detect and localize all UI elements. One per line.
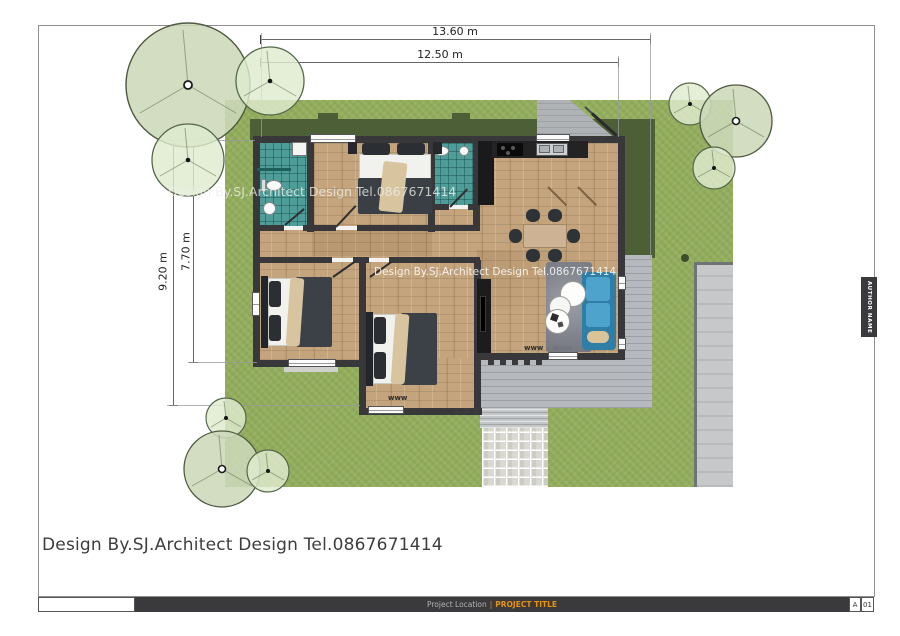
- title-bar-main: Project Location | PROJECT TITLE: [135, 597, 849, 612]
- author-name-tab: AUTHOR NAME: [861, 277, 877, 337]
- title-bar: Project Location | PROJECT TITLE A 01: [38, 597, 874, 612]
- corridor-shading: [312, 230, 432, 256]
- extension-line: [261, 33, 262, 137]
- shower-partition: [257, 168, 291, 171]
- deck-joist: [536, 359, 542, 365]
- door-threshold: [336, 226, 357, 230]
- extension-line: [167, 405, 360, 406]
- shrub: [681, 254, 689, 262]
- project-location-label: Project Location: [427, 600, 487, 609]
- wall-corridor-top: [357, 225, 480, 231]
- dining-chair: [526, 209, 540, 222]
- wall-corridor-bottom: [353, 257, 369, 263]
- stove-burner: [501, 146, 505, 150]
- pillow: [374, 317, 386, 344]
- stove-burner: [511, 146, 515, 150]
- watermark-lower: Design By.SJ.Architect Design Tel.086767…: [374, 266, 616, 278]
- dining-chair: [526, 249, 540, 262]
- wall-corridor-top: [253, 225, 284, 231]
- revision-letter-cell: A: [849, 597, 861, 612]
- bed-headboard: [366, 312, 373, 386]
- wall-bed2-bed3: [359, 257, 366, 415]
- dimension-top-inner: 12.50 m: [365, 48, 515, 61]
- deck-joist: [488, 359, 494, 365]
- folding-door-mark: www: [524, 345, 543, 351]
- terrace-steps: [480, 408, 548, 428]
- pillow: [269, 281, 281, 307]
- dimension-left-inner: 7.70 m: [180, 222, 193, 282]
- extension-line: [650, 33, 651, 258]
- dining-chair: [548, 209, 562, 222]
- pillow: [269, 315, 281, 341]
- extension-line: [618, 56, 619, 137]
- deck-joist: [473, 408, 479, 414]
- stove-burner: [506, 151, 510, 155]
- wall-corridor-top: [303, 225, 336, 231]
- dining-chair: [509, 229, 522, 243]
- dimension-left-inner-line: [193, 140, 194, 362]
- paver-walkway: [482, 428, 548, 487]
- kitchen-sink-basin: [553, 145, 564, 153]
- window-bedroom2-left: [252, 292, 260, 316]
- sheet-number-cell: 01: [861, 597, 874, 612]
- deck-joist: [455, 408, 461, 414]
- wall-corridor-bottom: [389, 257, 480, 263]
- window-bedroom3-bottom: [368, 406, 404, 414]
- deck-joist: [524, 359, 530, 365]
- sink: [263, 202, 276, 215]
- dining-chair: [567, 229, 580, 243]
- window-ledge: [284, 367, 338, 372]
- door-threshold: [369, 258, 389, 262]
- pillow: [397, 143, 425, 155]
- sofa-cushion: [586, 277, 610, 301]
- title-bar-blank-cell: [38, 597, 135, 612]
- tv-screen: [480, 296, 486, 332]
- wall-right: [618, 136, 625, 360]
- pillow: [374, 352, 386, 379]
- drawing-sheet: www www www: [0, 0, 900, 636]
- watermark-upper: Design By.SJ.Architect Design Tel.086767…: [168, 184, 456, 199]
- window-living-right: [618, 276, 626, 290]
- dining-table: [523, 224, 567, 248]
- bed-headboard: [261, 276, 268, 348]
- wall-corridor-bottom: [253, 257, 332, 263]
- folding-door-mark: www: [388, 395, 407, 401]
- sofa-cushion: [586, 303, 610, 327]
- wall-ext-right: [474, 360, 481, 415]
- dimension-top-inner-line: [261, 62, 618, 63]
- sheet-number: 01: [863, 601, 872, 609]
- nightstand: [433, 142, 442, 154]
- author-name-label: AUTHOR NAME: [866, 281, 872, 333]
- door-threshold: [284, 226, 303, 230]
- window-bedroom2-bottom: [288, 359, 336, 367]
- deck-joist: [464, 408, 470, 414]
- sliding-door-living: [548, 352, 578, 360]
- sofa-seat-cushion: [587, 331, 609, 343]
- deck-joist: [500, 359, 506, 365]
- extension-line: [167, 140, 255, 141]
- roof-shadow-tab: [452, 113, 470, 120]
- driveway: [694, 262, 733, 487]
- dining-chair: [548, 249, 562, 262]
- nightstand: [348, 142, 357, 154]
- extension-line: [188, 362, 257, 363]
- door-threshold: [332, 258, 353, 262]
- sink: [459, 146, 469, 156]
- project-title-label: PROJECT TITLE: [495, 600, 557, 609]
- dimension-top-outer-line: [261, 39, 650, 40]
- deck-joist: [512, 359, 518, 365]
- dimension-left-outer-line: [173, 140, 174, 405]
- roof-shadow-tab: [318, 113, 338, 120]
- signature-text: Design By.SJ.Architect Design Tel.086767…: [42, 535, 443, 555]
- kitchen-sink-basin: [539, 145, 550, 153]
- pillow: [362, 143, 390, 155]
- dimension-left-outer: 9.20 m: [157, 242, 170, 302]
- washer: [292, 142, 307, 156]
- dimension-top-outer: 13.60 m: [380, 25, 530, 38]
- title-separator: |: [490, 600, 493, 609]
- revision-letter: A: [853, 601, 858, 609]
- window-living-right: [618, 338, 626, 350]
